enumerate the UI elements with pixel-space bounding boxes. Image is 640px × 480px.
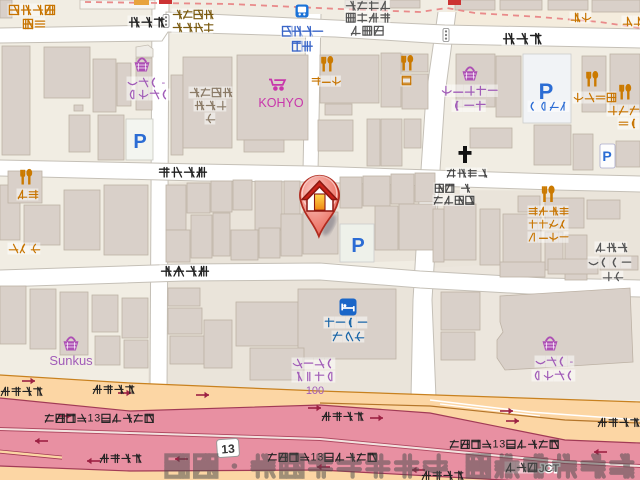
svg-text:KOHYO: KOHYO: [258, 96, 303, 110]
svg-text:13: 13: [221, 442, 236, 457]
svg-text:1: 1: [492, 439, 498, 451]
svg-text:-: -: [162, 77, 166, 89]
svg-text:3: 3: [94, 413, 100, 425]
svg-text:3: 3: [499, 439, 505, 451]
svg-text:-: -: [570, 356, 574, 368]
svg-text:Sunkus: Sunkus: [49, 353, 93, 368]
svg-text:P: P: [133, 131, 146, 153]
svg-text:100: 100: [306, 385, 324, 397]
svg-text:P: P: [539, 79, 554, 104]
svg-text:P: P: [602, 148, 611, 164]
svg-text:1: 1: [87, 413, 93, 425]
svg-text:P: P: [351, 235, 364, 257]
